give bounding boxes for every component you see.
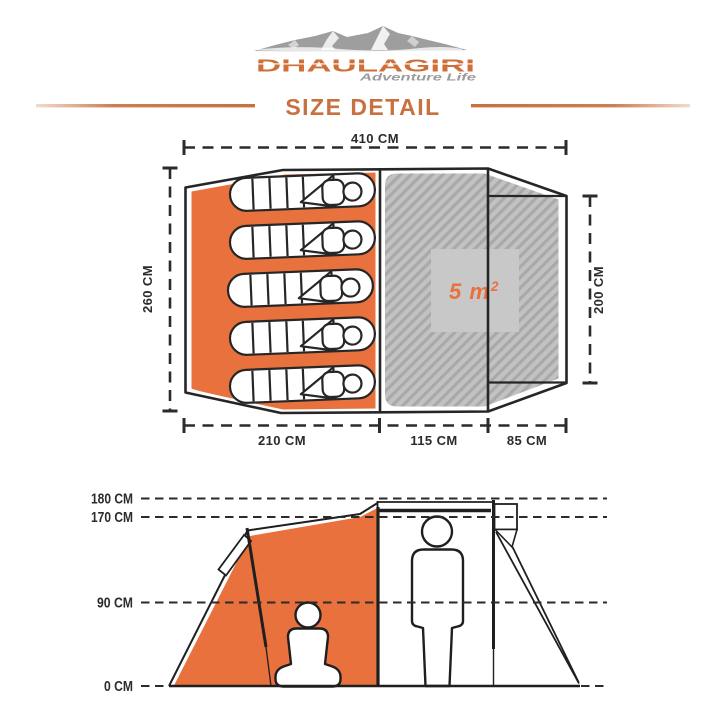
svg-text:0 CM: 0 CM — [104, 679, 133, 695]
svg-text:210 CM: 210 CM — [258, 433, 306, 448]
svg-text:260 CM: 260 CM — [140, 265, 155, 313]
svg-text:85 CM: 85 CM — [507, 433, 547, 448]
svg-text:180 CM: 180 CM — [91, 492, 133, 508]
svg-text:Adventure Life: Adventure Life — [359, 73, 476, 84]
svg-text:410 CM: 410 CM — [351, 131, 399, 146]
svg-text:115 CM: 115 CM — [410, 433, 457, 448]
svg-text:200 CM: 200 CM — [591, 266, 606, 314]
svg-text:170 CM: 170 CM — [91, 510, 133, 526]
svg-text:90 CM: 90 CM — [97, 596, 133, 612]
svg-text:SIZE DETAIL: SIZE DETAIL — [285, 94, 440, 120]
